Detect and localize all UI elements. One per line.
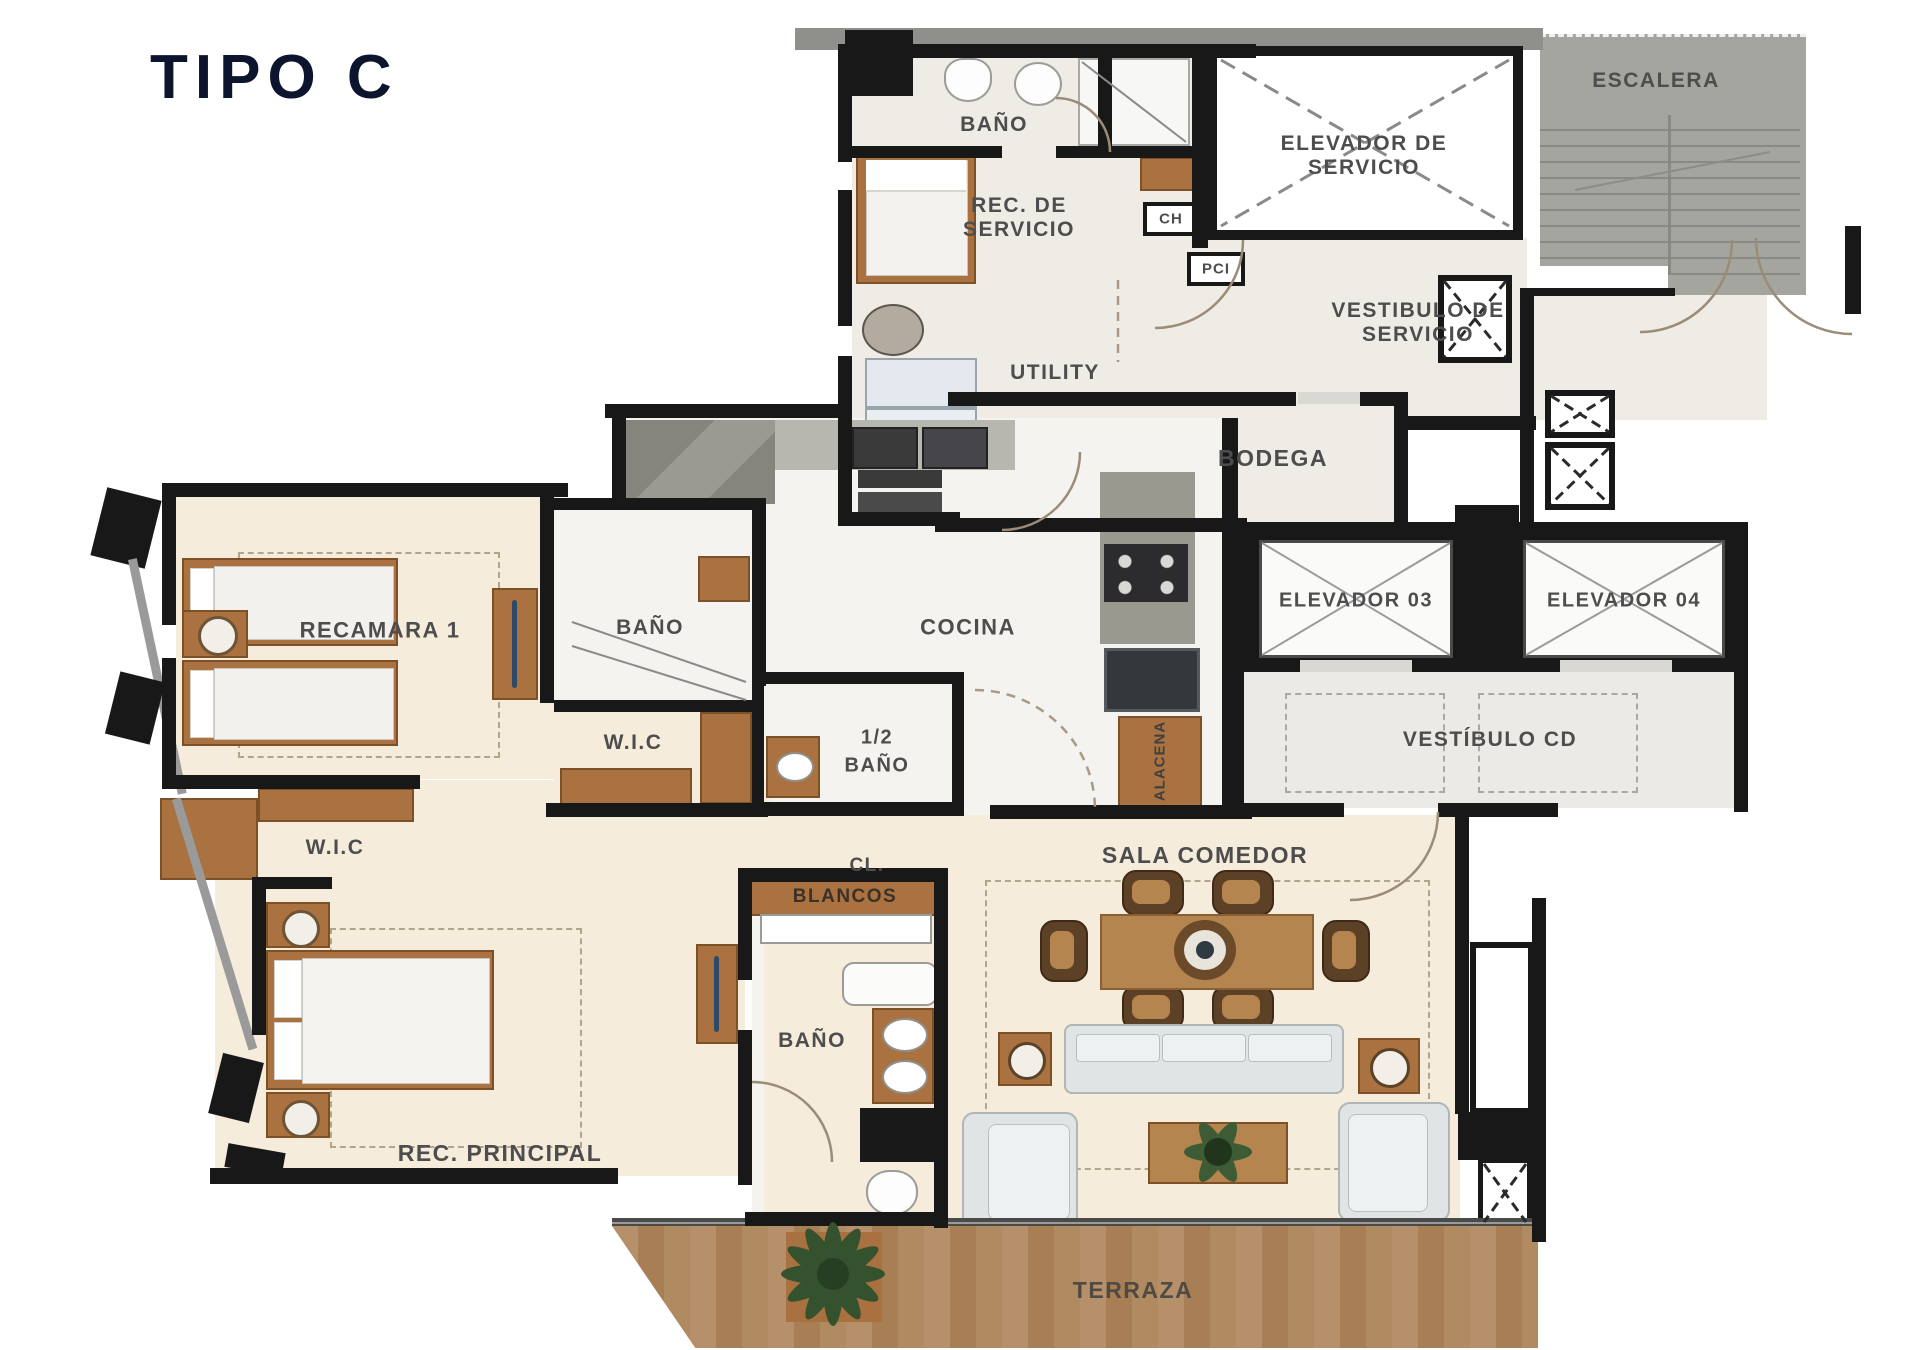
- label-bodega: BODEGA: [1218, 445, 1328, 471]
- door-arcs-dashed: [975, 280, 1118, 810]
- label-cl: CL.: [849, 855, 884, 877]
- label-medio-bano-1: 1/2: [861, 727, 893, 750]
- door-arcs: [752, 98, 1852, 1162]
- label-rec-servicio: REC. DE SERVICIO: [934, 194, 1104, 242]
- label-bano-servicio: BAÑO: [960, 113, 1028, 137]
- label-sala-comedor: SALA COMEDOR: [1102, 842, 1308, 868]
- label-recamara1: RECAMARA 1: [300, 617, 461, 642]
- floorplan-canvas: TIPO C BAÑO REC. DE SERVICIO CH PCI ELEV…: [0, 0, 1920, 1350]
- coffee-table-plant: [1184, 1118, 1252, 1187]
- label-rec-principal: REC. PRINCIPAL: [398, 1140, 603, 1166]
- label-bano1: BAÑO: [616, 616, 684, 640]
- plan-title: TIPO C: [150, 42, 399, 113]
- label-wic2: W.I.C: [306, 836, 365, 860]
- label-elevador03: ELEVADOR 03: [1279, 590, 1433, 613]
- label-ch: CH: [1159, 210, 1183, 227]
- label-pci: PCI: [1202, 260, 1230, 277]
- label-medio-bano-2: BAÑO: [845, 755, 910, 778]
- label-elevador-servicio: ELEVADOR DE SERVICIO: [1229, 132, 1499, 180]
- label-utility: UTILITY: [1010, 361, 1100, 385]
- label-blancos: BLANCOS: [793, 886, 897, 908]
- label-vestibulo-servicio: VESTIBULO DE SERVICIO: [1278, 299, 1558, 347]
- label-wic1: W.I.C: [604, 731, 663, 755]
- terraza-plant: [781, 1222, 885, 1326]
- stair-arrow: [1575, 152, 1770, 190]
- label-alacena: ALACENA: [1151, 721, 1168, 801]
- label-cocina: COCINA: [920, 614, 1016, 639]
- label-vestibulo-cd: VESTÍBULO CD: [1403, 728, 1577, 752]
- label-elevador04: ELEVADOR 04: [1547, 590, 1701, 613]
- label-escalera: ESCALERA: [1592, 69, 1720, 93]
- label-bano-principal: BAÑO: [778, 1029, 846, 1053]
- label-terraza: TERRAZA: [1073, 1277, 1193, 1303]
